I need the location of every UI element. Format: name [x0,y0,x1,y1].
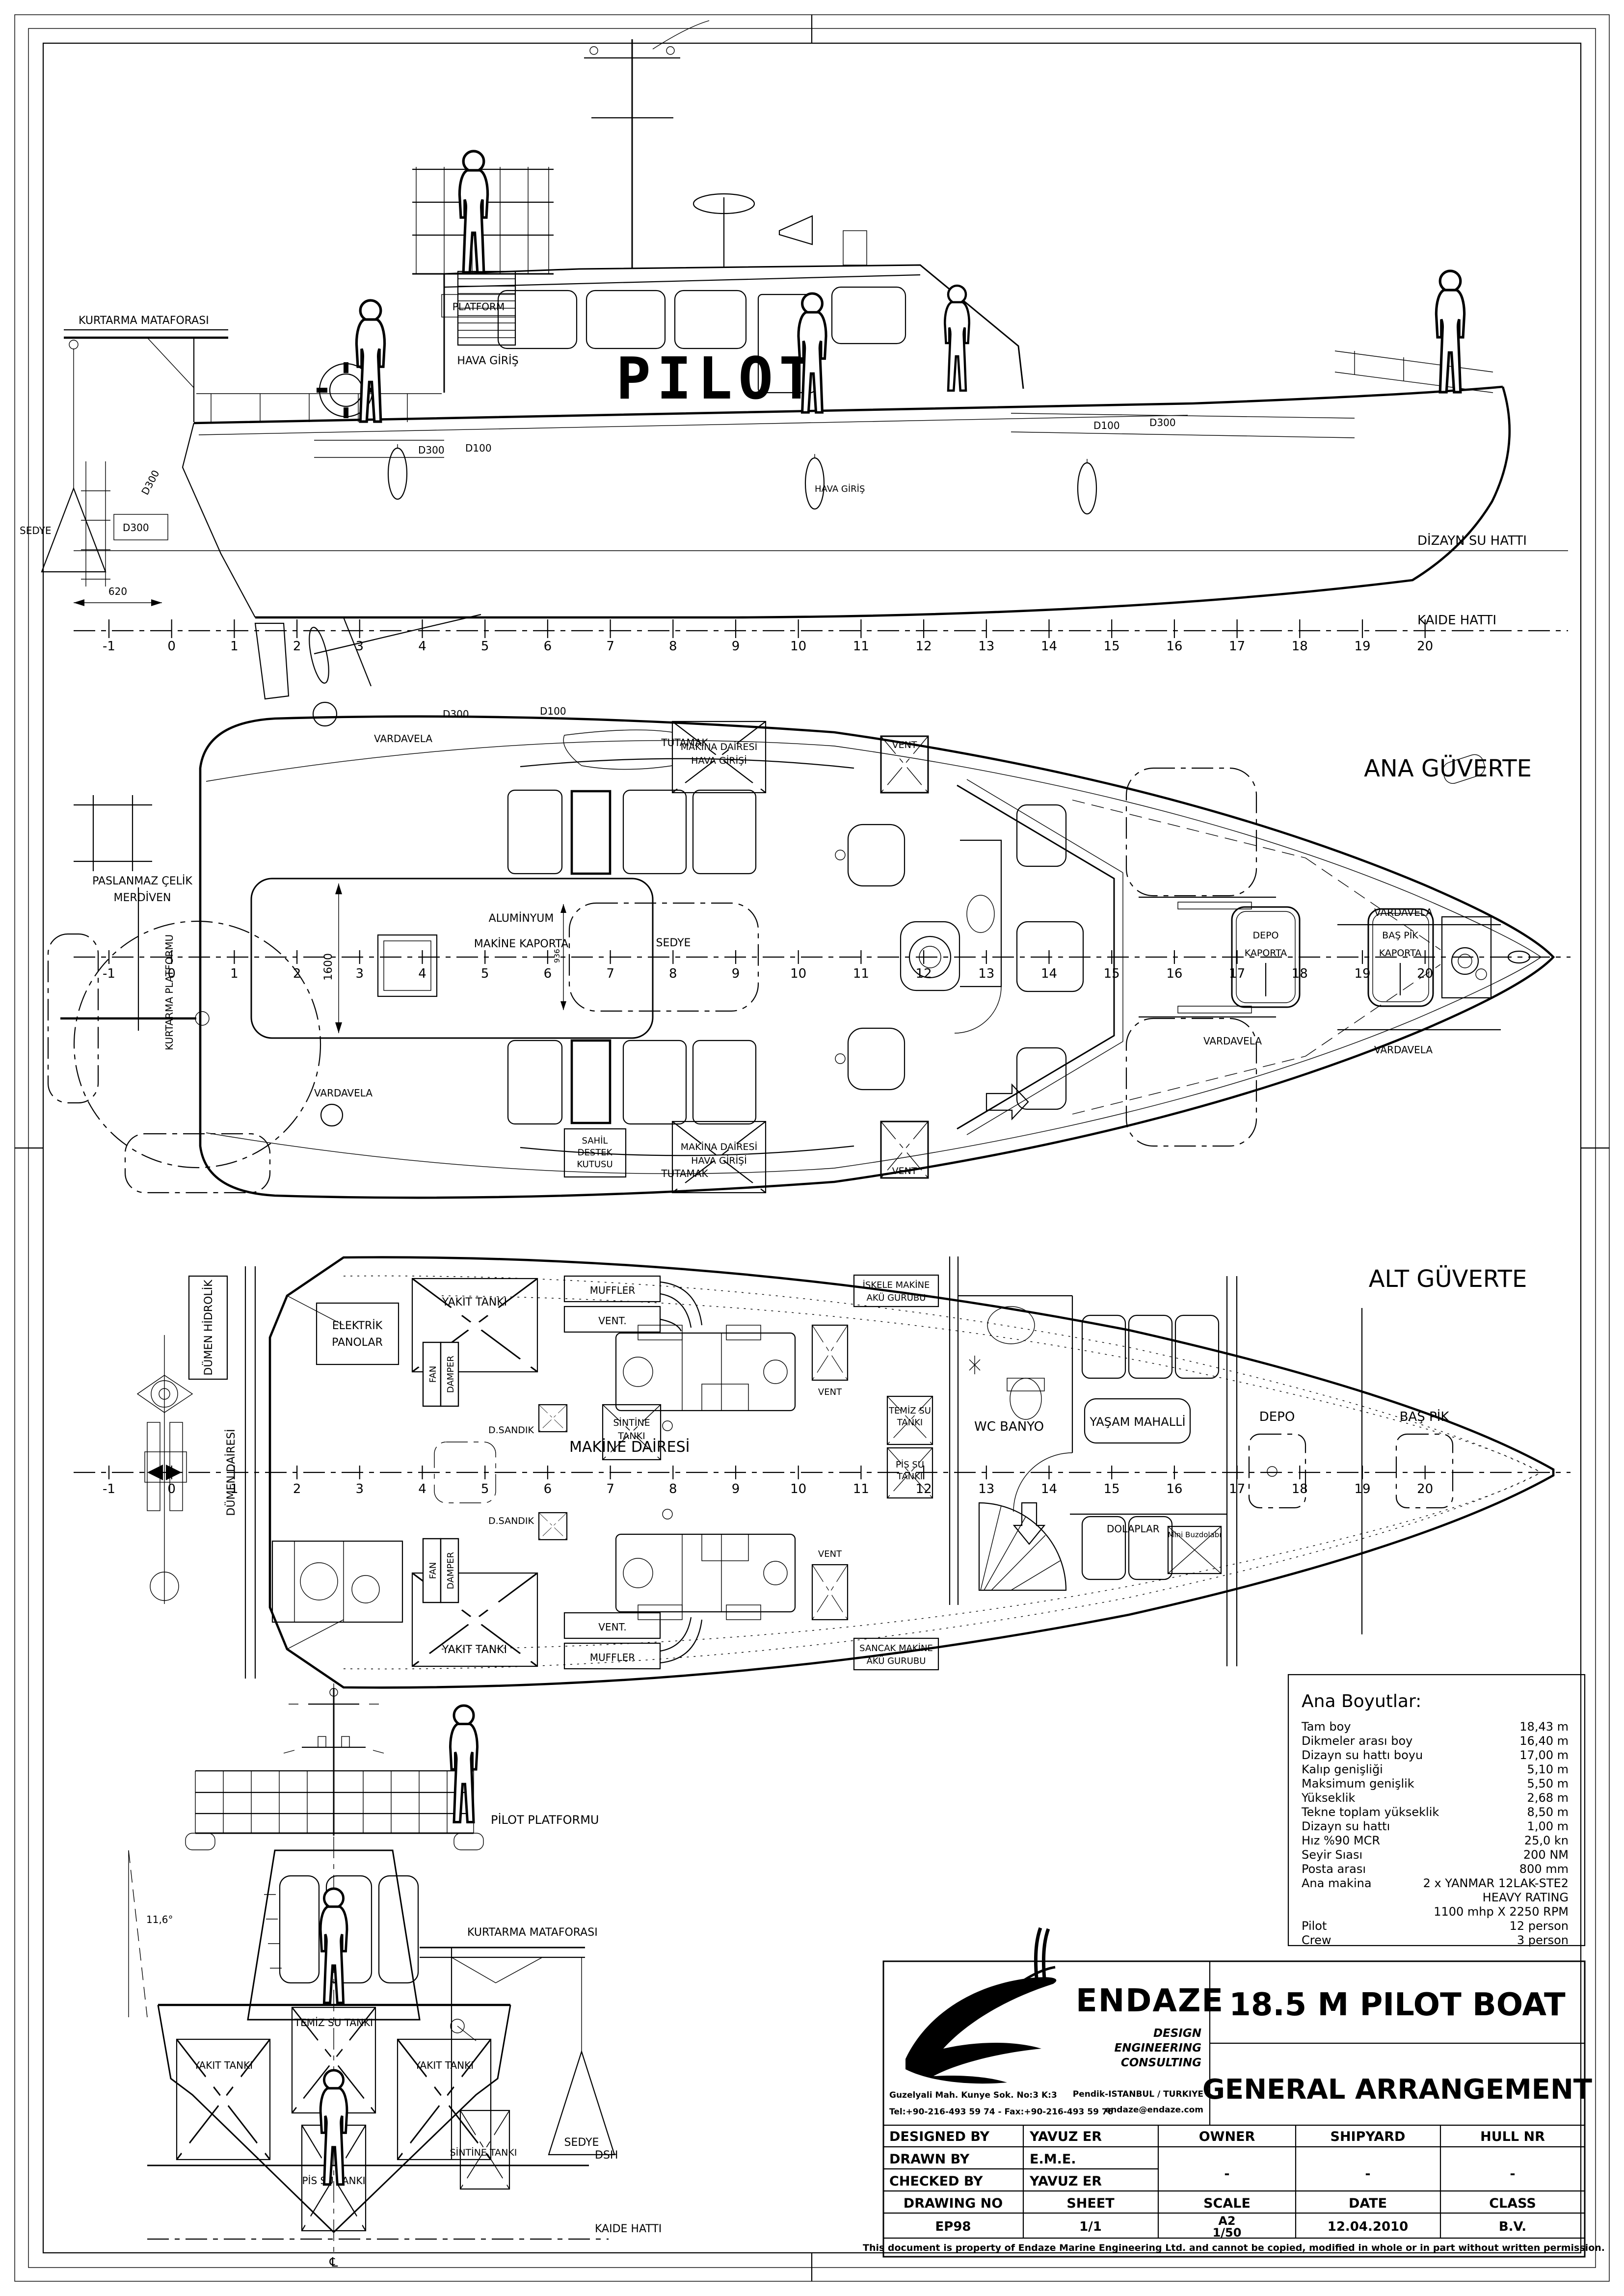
svg-text:VENT: VENT [818,1387,842,1397]
svg-text:KUTUSU: KUTUSU [577,1159,612,1170]
svg-text:13: 13 [978,1482,994,1496]
class-value: B.V. [1499,2219,1526,2234]
fenders [388,444,1096,514]
svg-text:5: 5 [481,639,489,654]
title-block: ENDAZE DESIGN ENGINEERING CONSULTING Guz… [863,1928,1605,2257]
svg-text:Pilot: Pilot [1302,1919,1327,1933]
svg-text:Maksimum genişlik: Maksimum genişlik [1302,1777,1414,1790]
md-vent-top: VENT [881,736,928,793]
ga-drawing: DİZAYN SU HATTI KAIDE HATTI -10123456789… [0,0,1624,2296]
svg-text:PİS SU TANKI: PİS SU TANKI [302,2175,365,2187]
vardavela-stern-bottom: VARDAVELA [314,1087,373,1099]
address-line-2: Tel:+90-216-493 59 74 - Fax:+90-216-493 … [889,2107,1114,2117]
md-sedye-label: SEDYE [656,937,691,949]
vardavela-stern-top: VARDAVELA [374,733,432,745]
svg-text:-1: -1 [103,1482,115,1496]
angle-label: 11,6° [146,1914,173,1925]
kaide-hatti-label: KAIDE HATTI [1417,613,1496,628]
svg-text:MUFFLER: MUFFLER [590,1652,636,1663]
scale-value-2: 1/50 [1213,2226,1242,2240]
mast [584,21,867,269]
svg-text:SİNTİNE: SİNTİNE [613,1417,650,1428]
owner-label: OWNER [1199,2129,1255,2144]
fan-damper-top: FAN DAMPER [423,1342,458,1406]
d300-stern: D300 [123,522,149,534]
vardavela-bow-bottom: VARDAVELA [1374,1044,1433,1056]
svg-text:ELEKTRİK: ELEKTRİK [332,1319,383,1332]
elektrik-panolar: ELEKTRİK PANOLAR [317,1303,399,1364]
svg-text:Seyir Sıası: Seyir Sıası [1302,1848,1362,1862]
svg-text:VENT: VENT [892,740,917,750]
svg-text:9: 9 [732,1482,740,1496]
d100-fwd-label: D100 [1093,420,1120,431]
svg-text:4: 4 [418,966,426,981]
person-figure [356,300,384,422]
pilot-platformu-label: PİLOT PLATFORMU [491,1813,599,1827]
centerline-symbol: ℄ [329,2255,338,2270]
svg-text:18: 18 [1292,639,1308,654]
owner-value: - [1224,2166,1229,2182]
svg-text:7: 7 [606,1482,614,1496]
svg-text:AKÜ GURUBU: AKÜ GURUBU [867,1292,926,1303]
svg-text:3 person: 3 person [1517,1933,1569,1947]
svg-text:16: 16 [1166,1482,1182,1496]
md-d300-label: D300 [443,708,469,720]
svg-text:TANKI: TANKI [897,1471,923,1482]
svg-text:12: 12 [916,1482,932,1496]
svg-text:KAPORTA: KAPORTA [1245,948,1287,959]
svg-text:25,0 kn: 25,0 kn [1524,1834,1569,1847]
svg-text:YAKIT TANKI: YAKIT TANKI [442,1644,507,1656]
svg-text:-1: -1 [103,639,115,654]
mini-buzdolabi: Mini Buzdolabı [1168,1526,1222,1574]
paslanmaz-label-1: PASLANMAZ ÇELİK [92,875,192,887]
svg-text:7: 7 [606,639,614,654]
project-title: 18.5 M PILOT BOAT [1229,1987,1566,2023]
svg-text:DÜMEN HİDROLİK: DÜMEN HİDROLİK [202,1280,215,1376]
svg-text:1: 1 [230,966,239,981]
svg-text:11: 11 [853,1482,869,1496]
svg-text:10: 10 [790,1482,806,1496]
bow-sedye-label: SEDYE [564,2136,599,2149]
svg-text:8: 8 [669,966,677,981]
svg-text:5: 5 [481,1482,489,1496]
lower-deck-title: ALT GÜVERTE [1369,1265,1527,1293]
address-line-1: Guzelyali Mah. Kunye Sok. No:3 K:3 [889,2090,1057,2100]
svg-text:4: 4 [418,1482,426,1496]
svg-text:VENT: VENT [818,1549,842,1559]
tutamak-top: TUTAMAK [661,737,708,748]
dim-620: 620 [108,586,127,597]
muffler-vent-top: MUFFLER VENT. [564,1276,702,1332]
stairs [979,1503,1066,1590]
address-email: endaze@endaze.com [1105,2105,1203,2115]
svg-text:6: 6 [544,639,552,654]
shipyard-label: SHIPYARD [1331,2129,1406,2144]
svg-text:D.SANDIK: D.SANDIK [488,1425,534,1436]
svg-text:D.SANDIK: D.SANDIK [488,1516,534,1526]
svg-text:VENT: VENT [892,1166,917,1176]
hava-giris-label: HAVA GİRİŞ [457,354,518,367]
svg-text:FAN: FAN [428,1366,438,1383]
d-sandik-bottom: D.SANDIK [488,1513,567,1540]
svg-text:2,68 m: 2,68 m [1527,1791,1569,1805]
drawing-sheet: DİZAYN SU HATTI KAIDE HATTI -10123456789… [0,0,1624,2296]
sheet-value: 1/1 [1079,2219,1102,2234]
svg-text:3: 3 [356,966,364,981]
svg-text:HAVA GİRİŞİ: HAVA GİRİŞİ [691,755,747,766]
svg-text:4: 4 [418,639,426,654]
fan-damper-bottom: FAN DAMPER [423,1539,458,1602]
date-label: DATE [1349,2196,1387,2211]
bow-view: PİLOT PLATFORMU 11,6° KURTARMA MATAFORAS… [129,1683,662,2270]
svg-text:12 person: 12 person [1510,1919,1569,1933]
bow-sintine: SİNTİNE TANKI [450,2110,517,2189]
d300-stern-rot: D300 [139,468,161,497]
svg-text:Dizayn su hattı: Dizayn su hattı [1302,1819,1390,1833]
svg-text:17,00 m: 17,00 m [1519,1748,1569,1762]
sintine-tanki: SİNTİNE TANKI [603,1405,672,1519]
date-value: 12.04.2010 [1328,2219,1408,2234]
tagline-3: CONSULTING [1121,2056,1201,2069]
svg-text:5,50 m: 5,50 m [1527,1777,1569,1790]
ld-vent-bottom: VENT [812,1549,848,1620]
makina-dairesi-hava-girisi-bottom: MAKİNA DAİRESİ HAVA GİRİŞİ [672,1121,766,1193]
svg-text:14: 14 [1041,639,1057,654]
tagline-2: ENGINEERING [1115,2042,1201,2055]
platform-label: PLATFORM [453,301,505,313]
svg-text:17: 17 [1229,639,1245,654]
kurtarma-platformu-label: KURTARMA PLATFORMU [163,934,175,1050]
person-figure [320,2070,347,2185]
svg-text:13: 13 [978,639,994,654]
svg-text:2 x YANMAR 12LAK-STE2: 2 x YANMAR 12LAK-STE2 [1423,1876,1569,1890]
tutamak-bottom: TUTAMAK [661,1168,708,1179]
svg-text:800 mm: 800 mm [1519,1862,1569,1876]
svg-text:8: 8 [669,1482,677,1496]
svg-text:11: 11 [853,966,869,981]
svg-text:1100 mhp X 2250 RPM: 1100 mhp X 2250 RPM [1434,1905,1569,1919]
svg-text:PANOLAR: PANOLAR [332,1336,383,1349]
d100-aft-label: D100 [465,442,492,454]
pilot-text: PILOT [616,345,820,412]
svg-text:0: 0 [167,639,176,654]
d300-fwd-label: D300 [1149,417,1176,428]
svg-text:Dizayn su hattı boyu: Dizayn su hattı boyu [1302,1748,1423,1762]
endaze-logo [905,1928,1056,2083]
dsh-label: DSH [595,2149,618,2162]
md-d100-label: D100 [540,705,566,717]
svg-text:PİS SU: PİS SU [896,1460,924,1470]
svg-text:YAŞAM MAHALLİ: YAŞAM MAHALLİ [1089,1415,1185,1429]
svg-text:VENT.: VENT. [598,1315,626,1327]
bow-kurtarma-label: KURTARMA MATAFORASI [467,1926,598,1939]
svg-text:16: 16 [1166,966,1182,981]
person-figure [1436,271,1464,392]
svg-text:Dikmeler arası boy: Dikmeler arası boy [1302,1734,1412,1748]
d300-aft-label: D300 [418,444,445,456]
svg-text:14: 14 [1041,1482,1057,1496]
svg-text:200 NM: 200 NM [1523,1848,1569,1862]
svg-text:WC BANYO: WC BANYO [974,1419,1044,1434]
svg-text:Crew: Crew [1302,1933,1331,1947]
bow-yakit-left: YAKIT TANKI [177,2039,270,2160]
svg-text:SİNTİNE TANKI: SİNTİNE TANKI [450,2147,517,2158]
svg-text:Ana makina: Ana makina [1302,1876,1372,1890]
muffler-vent-bottom: VENT. MUFFLER [564,1613,702,1669]
yasam-mahalli: YAŞAM MAHALLİ [1082,1315,1219,1579]
designed-by-value: YAVUZ ER [1029,2129,1102,2144]
main-deck-title: ANA GÜVERTE [1364,755,1532,782]
scale-label: SCALE [1203,2196,1251,2211]
svg-text:15: 15 [1104,639,1120,654]
svg-text:19: 19 [1354,639,1370,654]
makine-kaporta-label: MAKİNE KAPORTA [474,937,568,950]
svg-text:MAKİNA DAİRESİ: MAKİNA DAİRESİ [681,1141,757,1152]
svg-text:TANKI: TANKI [897,1417,923,1428]
svg-text:Kalıp genişliği: Kalıp genişliği [1302,1762,1383,1776]
drawing-no-label: DRAWING NO [904,2196,1003,2211]
svg-text:Mini Buzdolabı: Mini Buzdolabı [1168,1530,1222,1539]
svg-text:2: 2 [293,639,301,654]
svg-text:9: 9 [732,639,740,654]
copyright-note: This document is property of Endaze Mari… [863,2243,1605,2253]
svg-text:KAPORTA: KAPORTA [1379,948,1421,959]
svg-text:SANCAK MAKİNE: SANCAK MAKİNE [859,1643,933,1654]
md-vent-bottom: VENT [881,1121,928,1178]
dumen-dairesi-label: DÜMEN DAİRESİ [225,1429,238,1516]
designed-by-label: DESIGNED BY [889,2129,989,2144]
drawn-by-value: E.M.E. [1030,2152,1076,2167]
svg-text:10: 10 [790,639,806,654]
dumen-hidrolik: DÜMEN HİDROLİK [189,1276,227,1379]
svg-text:9: 9 [732,966,740,981]
temiz-su-tanki: TEMİZ SU TANKI [887,1396,932,1444]
svg-text:TEMİZ SU: TEMİZ SU [888,1406,931,1416]
svg-text:Yükseklik: Yükseklik [1301,1791,1356,1805]
bow-kaide-label: KAIDE HATTI [595,2223,662,2235]
svg-text:DAMPER: DAMPER [446,1552,456,1589]
person-figure [451,1706,478,1822]
steering-gear [137,1335,192,1604]
svg-text:8,50 m: 8,50 m [1527,1805,1569,1819]
svg-text:Posta arası: Posta arası [1302,1862,1366,1876]
shipyard-value: - [1365,2166,1370,2182]
svg-text:YAKIT TANKI: YAKIT TANKI [193,2059,253,2071]
main-deck-stations: -101234567891011121314151617181920 [103,950,1433,981]
address-city: Pendik-ISTANBUL / TURKIYE [1073,2089,1203,2099]
svg-text:İSKELE MAKİNE: İSKELE MAKİNE [863,1280,930,1290]
svg-text:16: 16 [1166,639,1182,654]
ld-vent-top: VENT [812,1325,848,1397]
svg-text:BAŞ PİK: BAŞ PİK [1400,1409,1450,1424]
profile-stations: -101234567891011121314151617181920 [103,619,1433,654]
svg-text:FAN: FAN [428,1562,438,1579]
vardavela-mid-bottom: VARDAVELA [1203,1035,1262,1047]
svg-text:3: 3 [356,1482,364,1496]
svg-text:10: 10 [790,966,806,981]
d-sandik-top: D.SANDIK [488,1405,567,1436]
svg-text:12: 12 [916,639,932,654]
checked-by-label: CHECKED BY [889,2174,983,2189]
dim-1600: 1600 [322,953,335,981]
drawing-no-value: EP98 [935,2219,971,2234]
svg-text:6: 6 [544,966,552,981]
svg-text:16,40 m: 16,40 m [1519,1734,1569,1748]
svg-text:TANKI: TANKI [617,1431,645,1442]
dim-936: 936 [553,949,561,963]
svg-text:20: 20 [1417,1482,1433,1496]
drawing-title: GENERAL ARRANGEMENT [1202,2074,1592,2106]
svg-text:0: 0 [167,1482,176,1496]
hull-nr-value: - [1510,2166,1515,2182]
generator-set [272,1541,402,1622]
svg-text:2: 2 [293,1482,301,1496]
svg-text:HEAVY RATING: HEAVY RATING [1483,1891,1569,1904]
checked-by-value: YAVUZ ER [1029,2174,1102,2189]
svg-text:DEPO: DEPO [1259,1410,1295,1424]
kurtarma-mataforasi-label: KURTARMA MATAFORASI [79,315,209,327]
svg-text:1,00 m: 1,00 m [1527,1819,1569,1833]
svg-text:BAŞ PİK: BAŞ PİK [1382,930,1418,941]
svg-text:1: 1 [230,639,239,654]
dolaplar-label: DOLAPLAR [1107,1523,1160,1535]
svg-text:18,43 m: 18,43 m [1519,1720,1569,1734]
main-deck-plan: -101234567891011121314151617181920 KURTA… [48,702,1571,1198]
dizayn-su-hatti-label: DİZAYN SU HATTI [1417,533,1527,548]
lower-deck-plan: -101234567891011121314151617181920 DÜMEN… [74,1256,1571,1687]
svg-text:MUFFLER: MUFFLER [590,1284,636,1296]
svg-text:8: 8 [669,639,677,654]
svg-text:Tam boy: Tam boy [1301,1720,1351,1734]
aluminyum-label: ALUMİNYUM [489,912,554,925]
person-figure [945,286,969,391]
drawn-by-label: DRAWN BY [889,2152,970,2167]
svg-text:VENT.: VENT. [598,1621,626,1633]
bow-yakit-right: YAKIT TANKI [398,2039,491,2160]
svg-text:AKÜ GURUBU: AKÜ GURUBU [867,1655,926,1666]
profile-view: DİZAYN SU HATTI KAIDE HATTI -10123456789… [20,21,1568,699]
sedye-label: SEDYE [20,525,52,536]
svg-text:15: 15 [1104,1482,1120,1496]
engine-starboard [616,1534,795,1620]
svg-text:HAVA GİRİŞİ: HAVA GİRİŞİ [691,1155,747,1166]
class-label: CLASS [1489,2196,1536,2211]
svg-text:5: 5 [481,966,489,981]
svg-text:6: 6 [544,1482,552,1496]
svg-text:Tekne toplam yükseklik: Tekne toplam yükseklik [1301,1805,1439,1819]
tagline-1: DESIGN [1153,2027,1201,2040]
svg-text:13: 13 [978,966,994,981]
svg-text:TEMİZ SU TANKI: TEMİZ SU TANKI [294,2017,373,2029]
svg-text:7: 7 [606,966,614,981]
person-figure [320,1889,347,2003]
svg-text:15: 15 [1104,966,1120,981]
hava-giris-2-label: HAVA GİRİŞ [815,484,865,494]
svg-text:14: 14 [1041,966,1057,981]
svg-text:5,10 m: 5,10 m [1527,1762,1569,1776]
lower-deck-stations: -101234567891011121314151617181920 [103,1466,1433,1496]
dimensions-box: Ana Boyutlar: Tam boy18,43 mDikmeler ara… [1288,1675,1585,1947]
sheet-label: SHEET [1066,2196,1115,2211]
svg-text:DAMPER: DAMPER [446,1356,456,1393]
svg-text:YAKIT TANKI: YAKIT TANKI [414,2059,474,2071]
specs-rows: Tam boy18,43 mDikmeler arası boy16,40 mD… [1301,1720,1569,1947]
svg-text:20: 20 [1417,639,1433,654]
engine-port [616,1325,795,1411]
specs-title: Ana Boyutlar: [1302,1691,1421,1711]
svg-text:Hız %90 MCR: Hız %90 MCR [1302,1834,1380,1847]
svg-text:SAHİL: SAHİL [582,1136,608,1146]
svg-text:-1: -1 [103,966,115,981]
svg-text:DEPO: DEPO [1252,930,1278,941]
svg-text:11: 11 [853,639,869,654]
svg-text:YAKIT TANKI: YAKIT TANKI [442,1296,507,1308]
paslanmaz-label-2: MERDİVEN [113,891,171,904]
makina-dairesi-hava-girisi-top: MAKİNA DAİRESİ HAVA GİRİŞİ [563,721,766,793]
company-name: ENDAZE [1076,1983,1224,2019]
hull-nr-label: HULL NR [1480,2129,1545,2144]
